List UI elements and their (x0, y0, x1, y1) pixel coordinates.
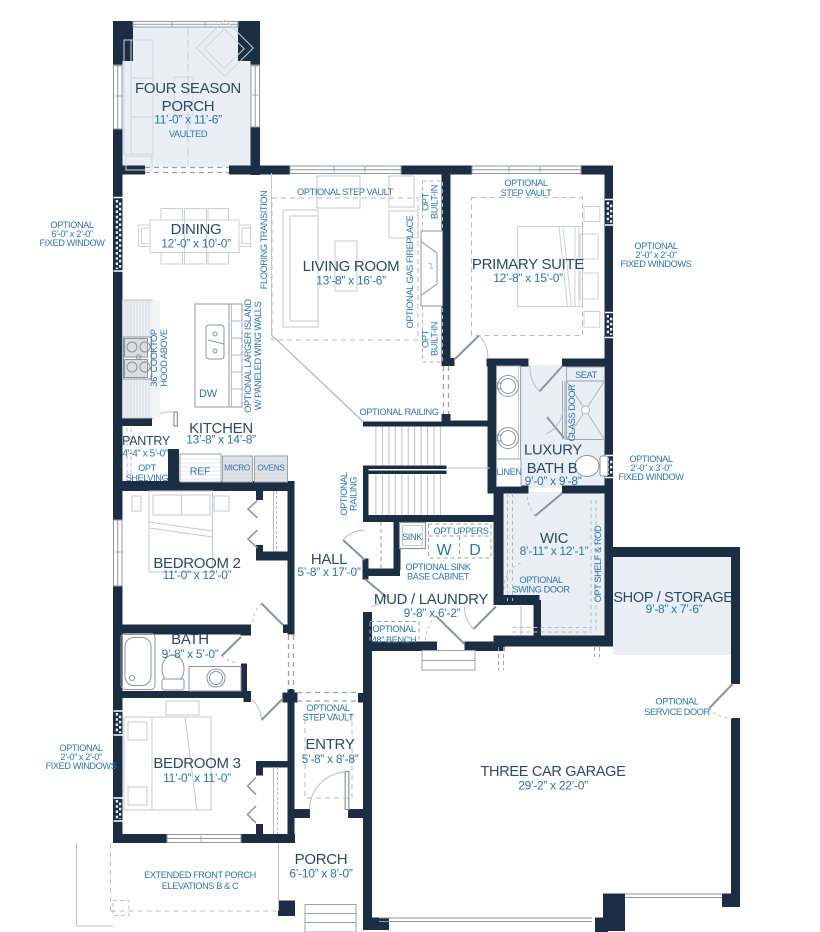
svg-text:9’-8” x 5’-0”: 9’-8” x 5’-0” (162, 647, 219, 661)
svg-text:HOOD ABOVE: HOOD ABOVE (159, 329, 169, 387)
svg-text:D: D (469, 542, 481, 559)
svg-text:BUILT-IN: BUILT-IN (430, 185, 440, 219)
svg-text:GLASS DOOR: GLASS DOOR (567, 384, 577, 442)
svg-text:11’-0” x 11’-6”: 11’-0” x 11’-6” (154, 113, 222, 127)
svg-text:29’-2” x 22’-0”: 29’-2” x 22’-0” (518, 779, 588, 793)
svg-text:BATH: BATH (171, 631, 209, 648)
svg-text:BASE CABINET: BASE CABINET (407, 572, 470, 582)
svg-text:BUILT-IN: BUILT-IN (430, 322, 440, 356)
svg-text:11’-0” x 11’-0”: 11’-0” x 11’-0” (163, 771, 231, 785)
svg-text:OPT SHELF & ROD: OPT SHELF & ROD (593, 525, 603, 602)
svg-text:FIXED WINDOW: FIXED WINDOW (39, 238, 105, 248)
svg-text:BEDROOM 3: BEDROOM 3 (153, 755, 240, 772)
svg-text:12’-0” x 10’-0”: 12’-0” x 10’-0” (161, 237, 231, 251)
svg-text:LIVING ROOM: LIVING ROOM (303, 258, 400, 275)
svg-text:12’-8” x 15’-0”: 12’-8” x 15’-0” (493, 271, 563, 285)
svg-text:8’-11” x 12’-1”: 8’-11” x 12’-1” (520, 544, 589, 558)
svg-text:MICRO: MICRO (224, 464, 250, 473)
svg-text:4’-4” x 5’-0”: 4’-4” x 5’-0” (122, 449, 167, 460)
svg-text:13’-8” x 14’-8”: 13’-8” x 14’-8” (186, 433, 256, 447)
svg-text:OPTIONAL: OPTIONAL (655, 697, 699, 707)
svg-text:36” COOKTOP: 36” COOKTOP (149, 329, 159, 386)
svg-text:SHELVING: SHELVING (126, 473, 169, 483)
svg-text:W: W (436, 542, 452, 559)
svg-text:OPTIONAL: OPTIONAL (504, 178, 548, 188)
svg-text:OVENS: OVENS (257, 464, 285, 473)
svg-text:STEP VAULT: STEP VAULT (501, 188, 552, 198)
svg-text:LUXURY: LUXURY (524, 443, 582, 459)
svg-text:OPT: OPT (138, 463, 156, 473)
svg-text:SEAT: SEAT (575, 370, 598, 380)
svg-text:ELEVATIONS B & C: ELEVATIONS B & C (162, 881, 239, 891)
svg-text:9’-8” x 7’-6”: 9’-8” x 7’-6” (646, 602, 703, 616)
svg-text:VAULTED: VAULTED (169, 129, 208, 139)
svg-text:W/ PANELED WING WALLS: W/ PANELED WING WALLS (253, 301, 263, 410)
svg-text:13’-8” x 16’-6”: 13’-8” x 16’-6” (316, 274, 386, 288)
svg-text:PANTRY: PANTRY (122, 434, 171, 448)
svg-text:LINEN: LINEN (496, 467, 521, 477)
svg-text:11’-0” x 12’-0”: 11’-0” x 12’-0” (163, 568, 232, 582)
svg-text:OPTIONAL STEP VAULT: OPTIONAL STEP VAULT (297, 187, 393, 197)
svg-text:OPTIONAL: OPTIONAL (372, 624, 416, 634)
svg-text:OPTIONAL: OPTIONAL (306, 703, 350, 713)
svg-text:OPTIONAL GAS FIREPLACE: OPTIONAL GAS FIREPLACE (405, 215, 415, 328)
svg-text:OPTIONAL: OPTIONAL (519, 575, 563, 585)
svg-text:9’-8” x 6’-2”: 9’-8” x 6’-2” (404, 606, 461, 620)
svg-text:FIXED WINDOWS: FIXED WINDOWS (46, 761, 117, 771)
svg-text:OPTIONAL: OPTIONAL (339, 472, 349, 516)
svg-text:STEP VAULT: STEP VAULT (303, 713, 354, 723)
svg-text:FOUR SEASON: FOUR SEASON (135, 80, 241, 97)
svg-text:6’-10” x 8’-0”: 6’-10” x 8’-0” (289, 867, 352, 881)
svg-text:REF: REF (190, 466, 210, 478)
svg-text:RAILING: RAILING (349, 477, 359, 511)
svg-text:PORCH: PORCH (295, 851, 348, 868)
svg-text:ENTRY: ENTRY (305, 736, 354, 753)
svg-text:9’-0” x 9’-8”: 9’-0” x 9’-8” (525, 474, 582, 488)
svg-text:OPTIONAL RAILING: OPTIONAL RAILING (359, 407, 438, 417)
svg-text:DINING: DINING (171, 221, 222, 238)
svg-text:DW: DW (199, 388, 218, 400)
svg-text:OPTIONAL SINK: OPTIONAL SINK (406, 562, 472, 572)
svg-text:OPTIONAL LARGER ISLAND: OPTIONAL LARGER ISLAND (243, 299, 253, 413)
svg-text:5’-8” x 17’-0”: 5’-8” x 17’-0” (297, 565, 360, 579)
svg-text:OPT UPPERS: OPT UPPERS (433, 526, 488, 536)
svg-text:EXTENDED FRONT PORCH: EXTENDED FRONT PORCH (144, 870, 256, 880)
svg-text:SERVICE DOOR: SERVICE DOOR (644, 707, 710, 717)
svg-text:FLOORING TRANSITION: FLOORING TRANSITION (259, 191, 269, 289)
svg-text:5’-8” x 8’-8”: 5’-8” x 8’-8” (302, 752, 359, 766)
svg-text:FIXED WINDOW: FIXED WINDOW (618, 472, 684, 482)
svg-text:SINK: SINK (402, 532, 423, 542)
svg-text:48” BENCH: 48” BENCH (372, 635, 416, 645)
svg-text:SWING DOOR: SWING DOOR (512, 585, 570, 595)
svg-text:FIXED WINDOWS: FIXED WINDOWS (621, 259, 692, 269)
